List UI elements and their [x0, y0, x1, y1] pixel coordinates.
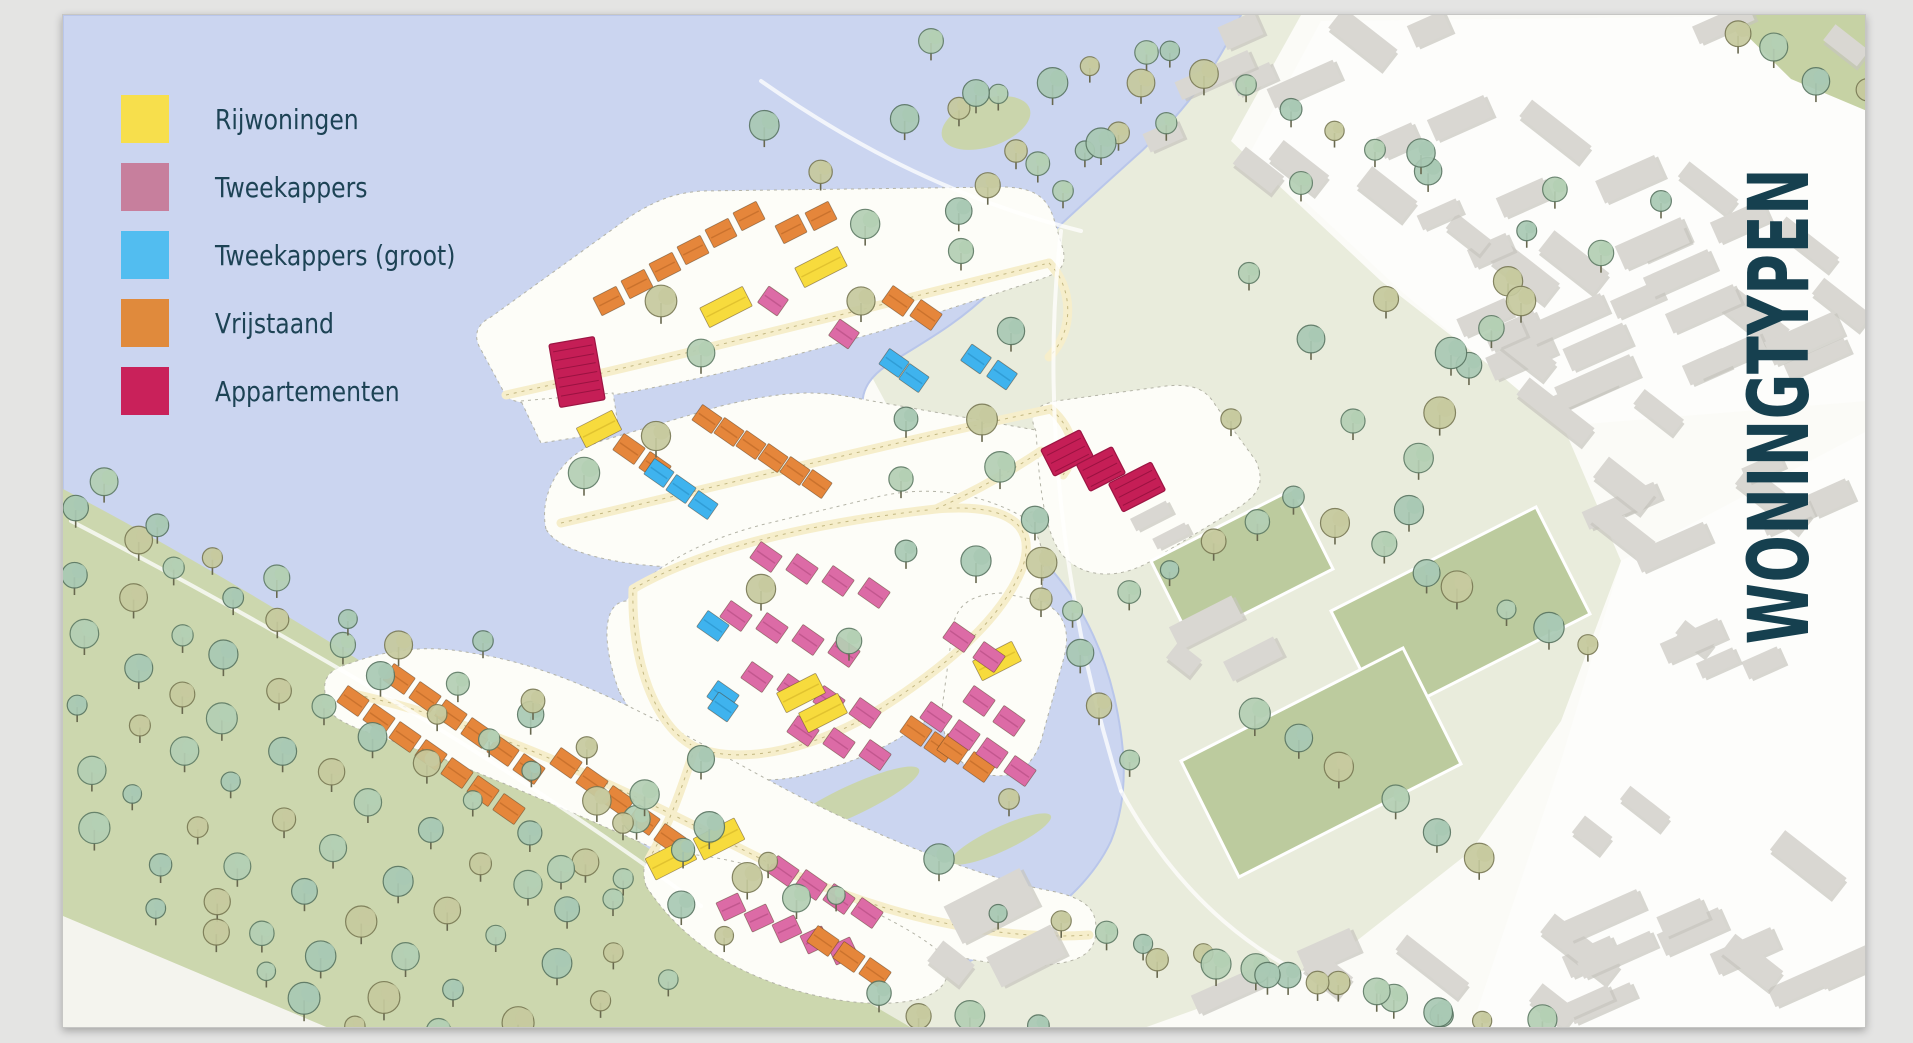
tree [1306, 971, 1329, 1001]
legend-item-tweekappers: Tweekappers [121, 163, 501, 211]
tree [1464, 843, 1494, 880]
legend-label: Vrijstaand [215, 307, 334, 340]
legend-label: Appartementen [215, 375, 400, 408]
page-title: WONINGTYPEN [1724, 222, 1834, 644]
legend-item-appartementen: Appartementen [121, 367, 501, 415]
legend-item-vrijstaand: Vrijstaand [121, 299, 501, 347]
legend-label: Tweekappers [215, 171, 368, 204]
legend-swatch-tweekappers-groot [121, 231, 169, 279]
tree [1528, 1005, 1557, 1028]
legend-item-tweekappers-groot: Tweekappers (groot) [121, 231, 501, 279]
legend-swatch-appartementen [121, 367, 169, 415]
legend-swatch-vrijstaand [121, 299, 169, 347]
slide: Rijwoningen Tweekappers Tweekappers (gro… [62, 14, 1866, 1028]
tree [1327, 971, 1350, 1001]
tree [1473, 1011, 1492, 1028]
legend-swatch-tweekappers [121, 163, 169, 211]
legend-swatch-rijwoningen [121, 95, 169, 143]
legend-label: Rijwoningen [215, 103, 359, 136]
legend: Rijwoningen Tweekappers Tweekappers (gro… [121, 95, 501, 435]
legend-label: Tweekappers (groot) [215, 239, 455, 272]
tree [906, 1004, 931, 1028]
legend-item-rijwoningen: Rijwoningen [121, 95, 501, 143]
tree [955, 1001, 985, 1028]
page: { "title": { "text": "WONINGTYPEN", "col… [0, 0, 1913, 1043]
